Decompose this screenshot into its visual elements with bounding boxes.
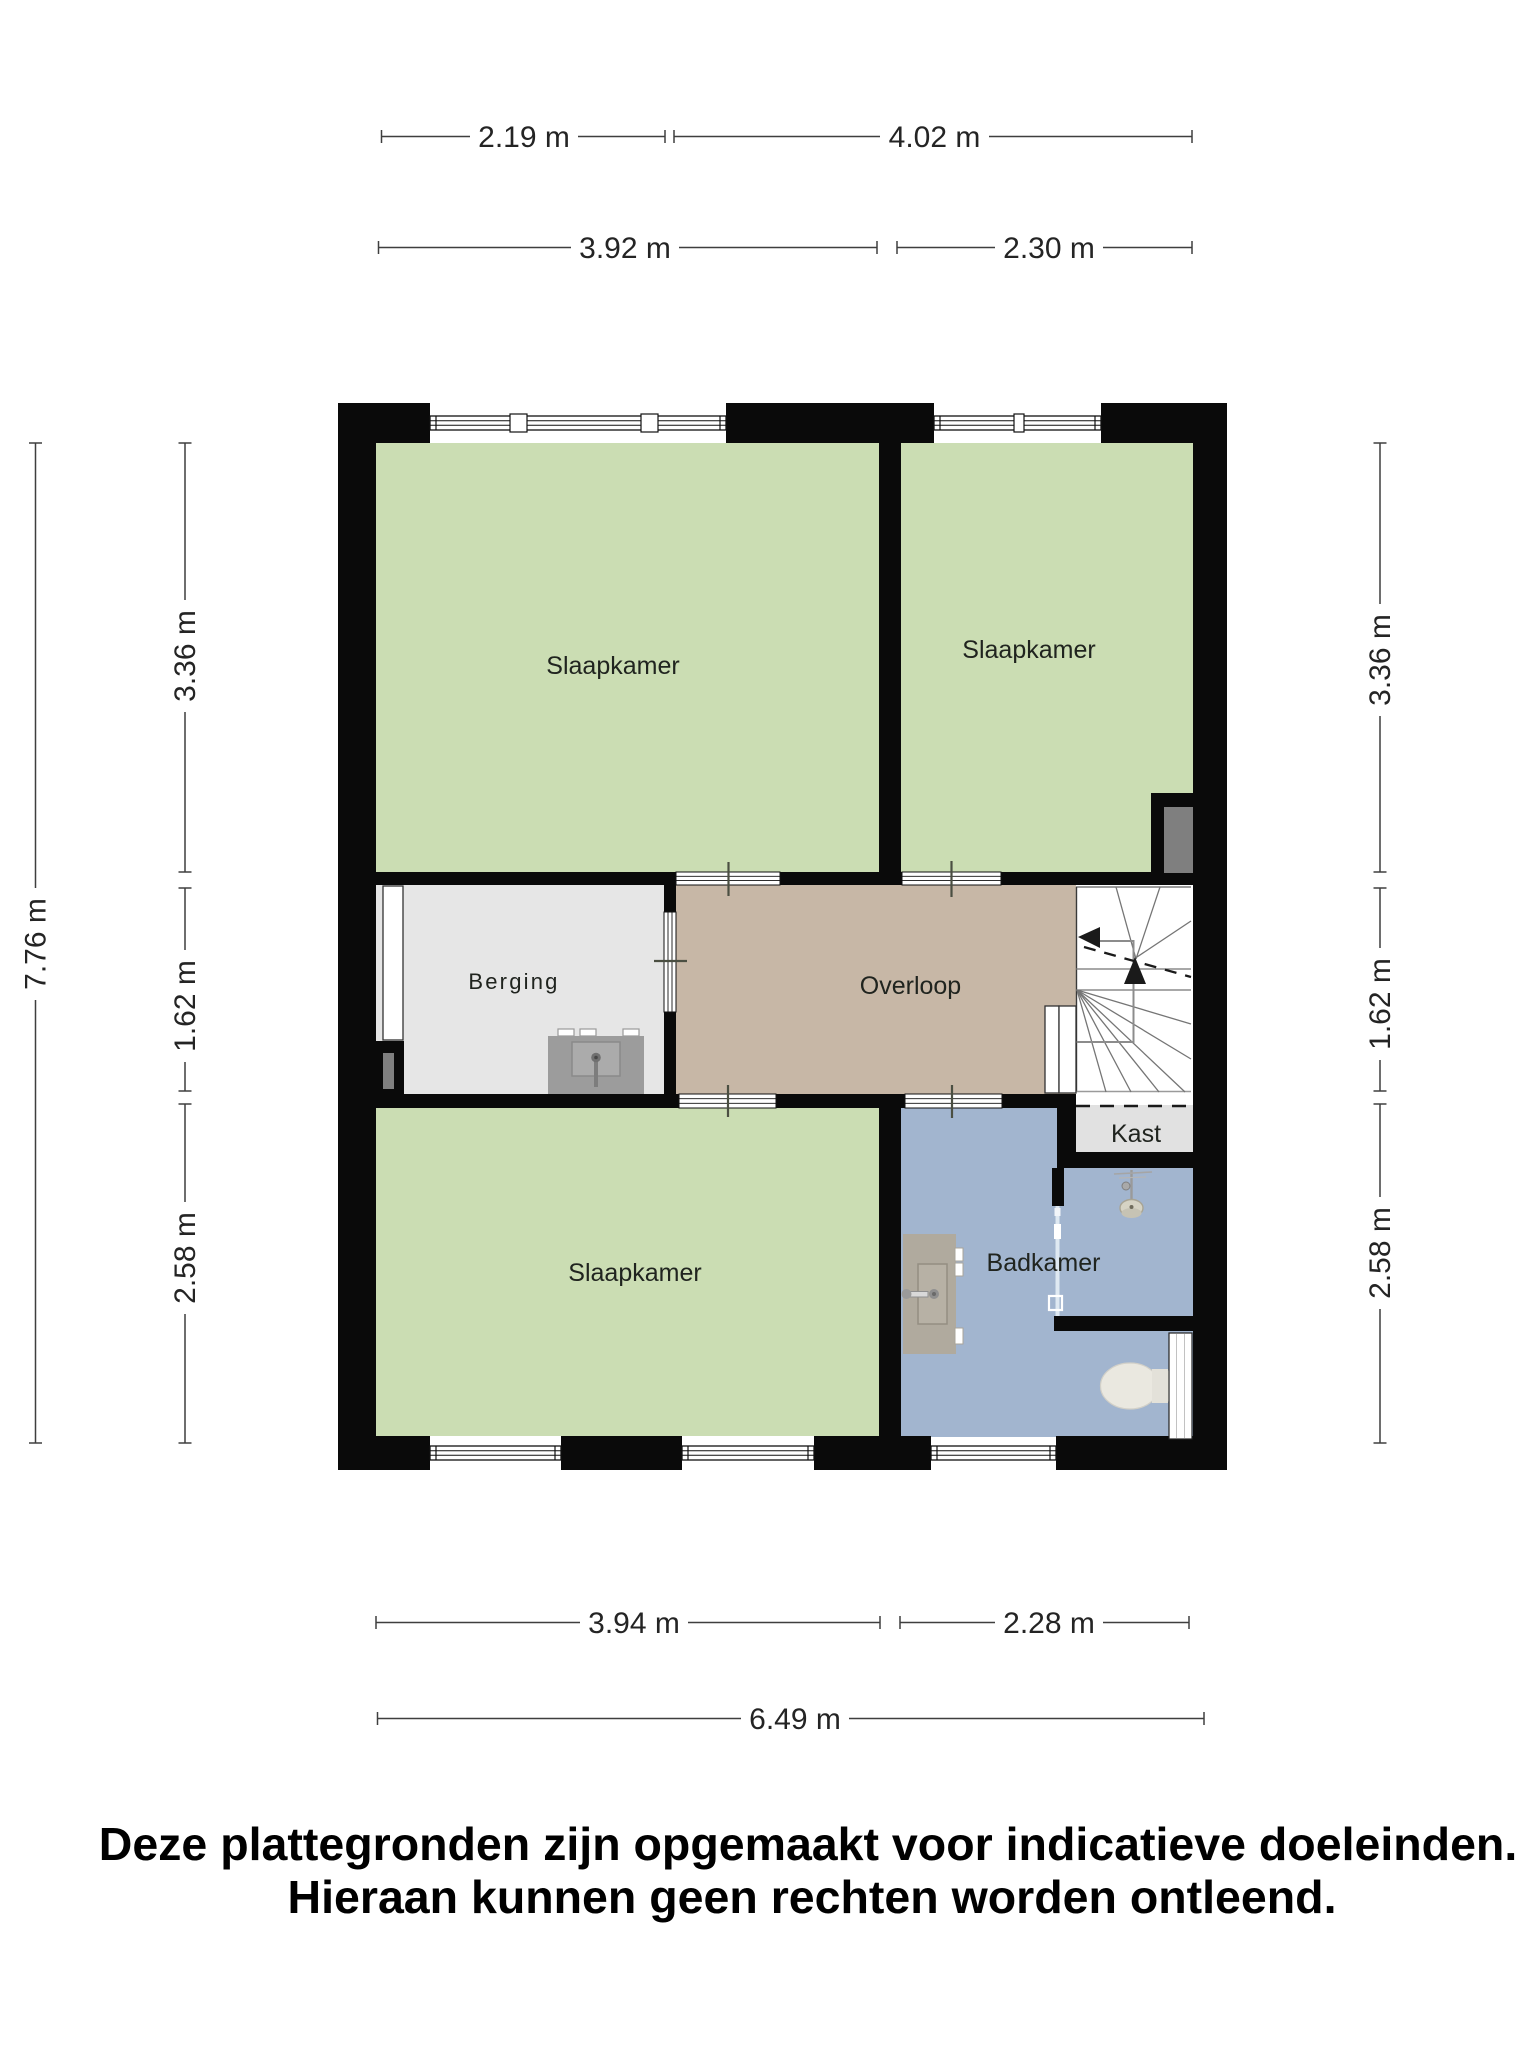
- svg-text:Slaapkamer: Slaapkamer: [568, 1259, 701, 1287]
- svg-text:2.58 m: 2.58 m: [169, 1212, 202, 1304]
- svg-text:2.28 m: 2.28 m: [1003, 1607, 1095, 1640]
- svg-text:Berging: Berging: [468, 969, 559, 994]
- svg-text:3.36 m: 3.36 m: [169, 610, 202, 702]
- svg-text:2.19 m: 2.19 m: [478, 121, 570, 154]
- svg-text:3.92 m: 3.92 m: [579, 232, 671, 265]
- svg-text:1.62 m: 1.62 m: [1364, 958, 1397, 1050]
- svg-text:Hieraan kunnen geen rechten wo: Hieraan kunnen geen rechten worden ontle…: [287, 1871, 1336, 1923]
- svg-text:2.58 m: 2.58 m: [1364, 1207, 1397, 1299]
- svg-text:7.76 m: 7.76 m: [20, 898, 53, 990]
- svg-text:Slaapkamer: Slaapkamer: [962, 636, 1095, 664]
- svg-text:1.62 m: 1.62 m: [169, 960, 202, 1052]
- svg-text:2.30 m: 2.30 m: [1003, 232, 1095, 265]
- svg-text:6.49 m: 6.49 m: [749, 1703, 841, 1736]
- svg-text:3.36 m: 3.36 m: [1364, 614, 1397, 706]
- svg-text:Badkamer: Badkamer: [987, 1249, 1101, 1277]
- svg-text:3.94 m: 3.94 m: [588, 1607, 680, 1640]
- svg-text:Deze plattegronden zijn opgema: Deze plattegronden zijn opgemaakt voor i…: [99, 1818, 1518, 1870]
- svg-text:Kast: Kast: [1111, 1120, 1161, 1148]
- svg-text:4.02 m: 4.02 m: [889, 121, 981, 154]
- svg-text:Slaapkamer: Slaapkamer: [546, 652, 679, 680]
- svg-text:Overloop: Overloop: [860, 972, 961, 1000]
